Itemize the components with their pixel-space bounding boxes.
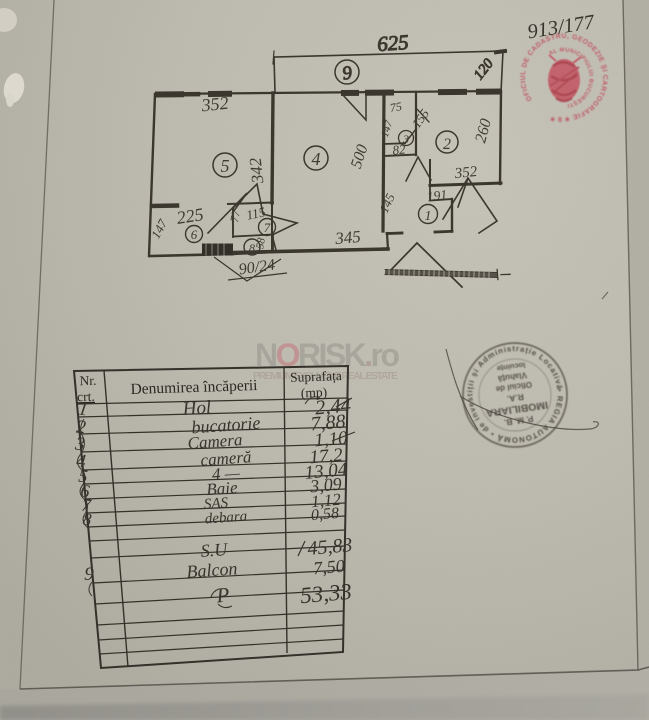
svg-text:2: 2: [443, 136, 451, 153]
svg-text:Balcon: Balcon: [186, 558, 238, 582]
svg-text:debara: debara: [204, 509, 248, 528]
svg-text:53,33: 53,33: [299, 579, 353, 608]
svg-text:1: 1: [425, 209, 432, 224]
svg-text:Suprafața: Suprafața: [290, 368, 342, 385]
svg-text:82: 82: [392, 141, 407, 157]
svg-text:P: P: [214, 582, 230, 607]
svg-text:6: 6: [191, 227, 198, 242]
svg-text:191: 191: [426, 187, 448, 204]
svg-text:352: 352: [200, 93, 230, 116]
svg-text:625: 625: [376, 30, 409, 56]
svg-text:342: 342: [246, 156, 268, 185]
svg-text:0,58: 0,58: [310, 505, 339, 524]
svg-text:75: 75: [389, 99, 403, 115]
svg-text:4: 4: [312, 149, 321, 169]
svg-text:7: 7: [264, 220, 271, 235]
svg-text:352: 352: [453, 164, 479, 182]
svg-text:Nr.: Nr.: [79, 373, 96, 388]
svg-text:5: 5: [221, 156, 230, 176]
svg-text:7,50: 7,50: [312, 556, 345, 579]
svg-text:S.U: S.U: [200, 539, 229, 561]
svg-text:345: 345: [333, 227, 361, 248]
svg-text:✶ 8 ✶: ✶ 8 ✶: [550, 115, 572, 124]
svg-text:225: 225: [175, 204, 205, 228]
